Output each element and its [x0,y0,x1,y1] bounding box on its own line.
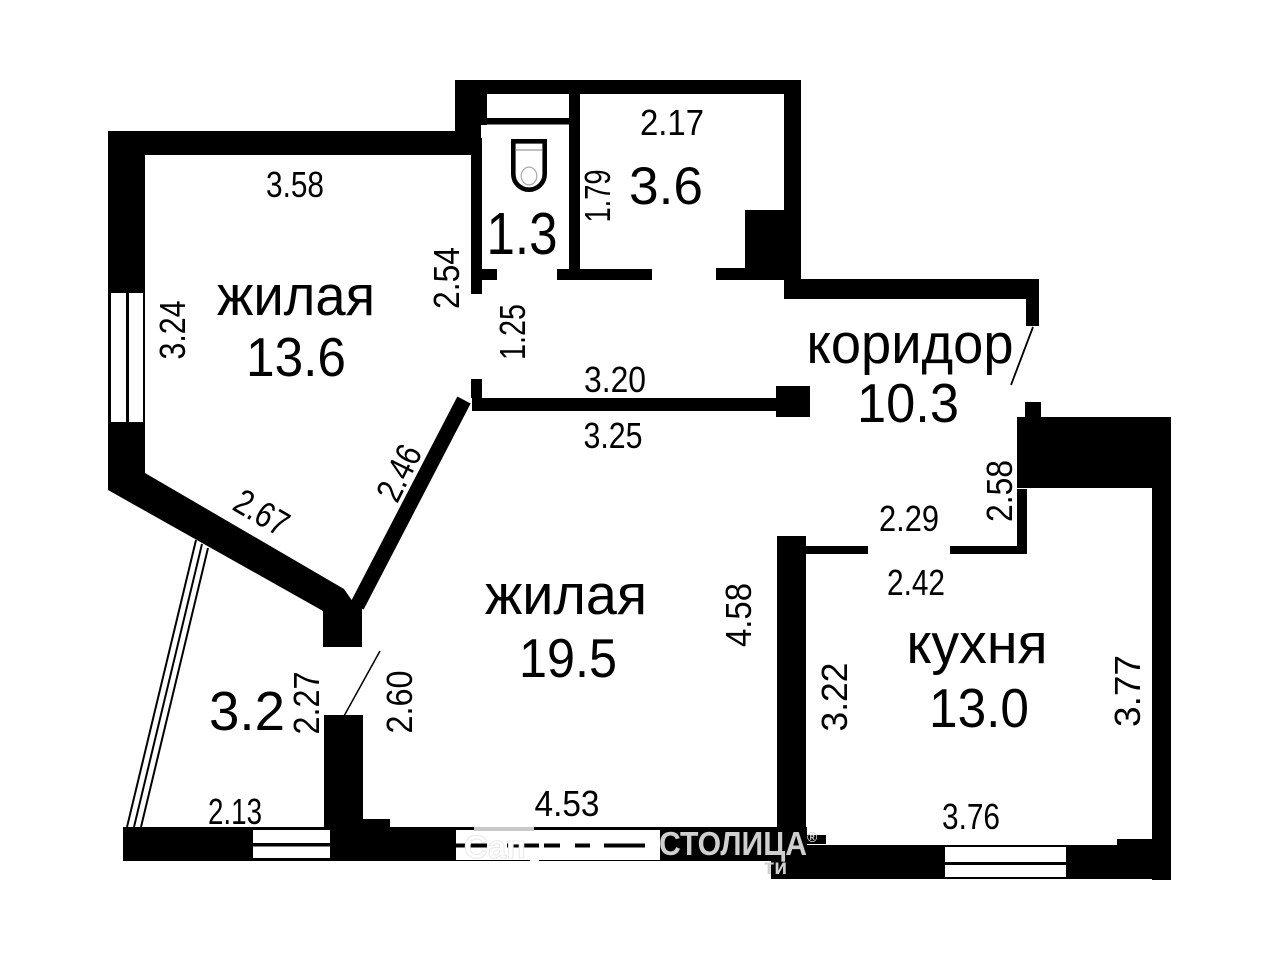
svg-text:кухня: кухня [907,612,1048,676]
svg-text:2.42: 2.42 [887,562,945,603]
svg-text:3.58: 3.58 [266,164,324,205]
svg-text:жилая: жилая [485,563,647,627]
svg-text:19.5: 19.5 [519,627,617,689]
svg-text:2.13: 2.13 [208,791,262,832]
svg-text:2.29: 2.29 [879,498,939,539]
svg-text:2.17: 2.17 [640,102,704,143]
svg-text:10.3: 10.3 [857,372,959,434]
svg-text:3.22: 3.22 [814,663,855,732]
svg-text:ти: ти [764,856,787,879]
svg-text:2.27: 2.27 [286,672,327,735]
svg-text:2.58: 2.58 [979,460,1020,522]
svg-text:13.0: 13.0 [929,677,1029,739]
svg-text:13.6: 13.6 [246,326,346,388]
svg-text:4.53: 4.53 [535,783,600,824]
svg-text:3.24: 3.24 [152,301,193,360]
svg-text:®: ® [807,829,818,845]
svg-text:3.6: 3.6 [629,157,703,216]
svg-text:3.25: 3.25 [584,415,643,456]
svg-text:3.77: 3.77 [1107,655,1148,727]
svg-text:2.60: 2.60 [379,671,420,734]
svg-text:3.20: 3.20 [584,359,646,400]
svg-text:4.58: 4.58 [718,583,759,647]
svg-text:жилая: жилая [217,264,375,328]
svg-text:1.79: 1.79 [577,170,618,223]
svg-text:3.2: 3.2 [209,680,285,742]
svg-text:Сап: Сап [464,829,526,865]
svg-text:коридор: коридор [807,312,1014,376]
svg-text:3.76: 3.76 [942,796,1000,837]
svg-text:2.54: 2.54 [426,247,467,309]
svg-text:1.25: 1.25 [492,304,533,360]
svg-text:1.3: 1.3 [487,201,558,267]
